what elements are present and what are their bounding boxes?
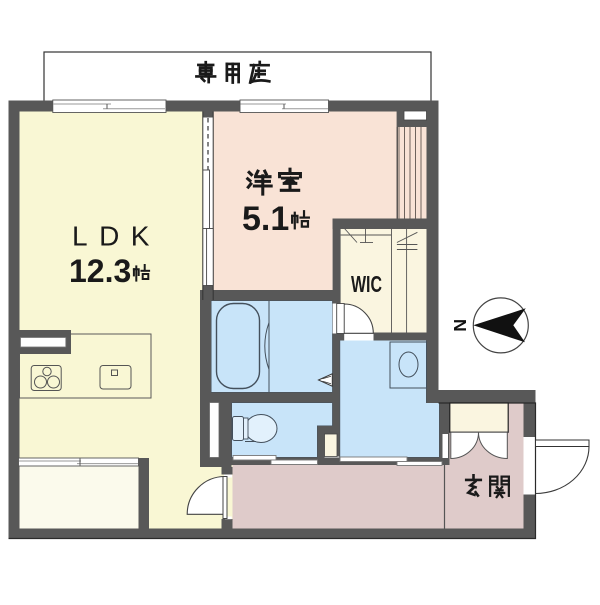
svg-text:LDK: LDK bbox=[72, 221, 161, 252]
svg-text:WIC: WIC bbox=[351, 271, 382, 297]
svg-text:5.1: 5.1 bbox=[242, 200, 289, 238]
svg-text:N: N bbox=[450, 319, 470, 332]
svg-text:12.3: 12.3 bbox=[69, 253, 131, 289]
